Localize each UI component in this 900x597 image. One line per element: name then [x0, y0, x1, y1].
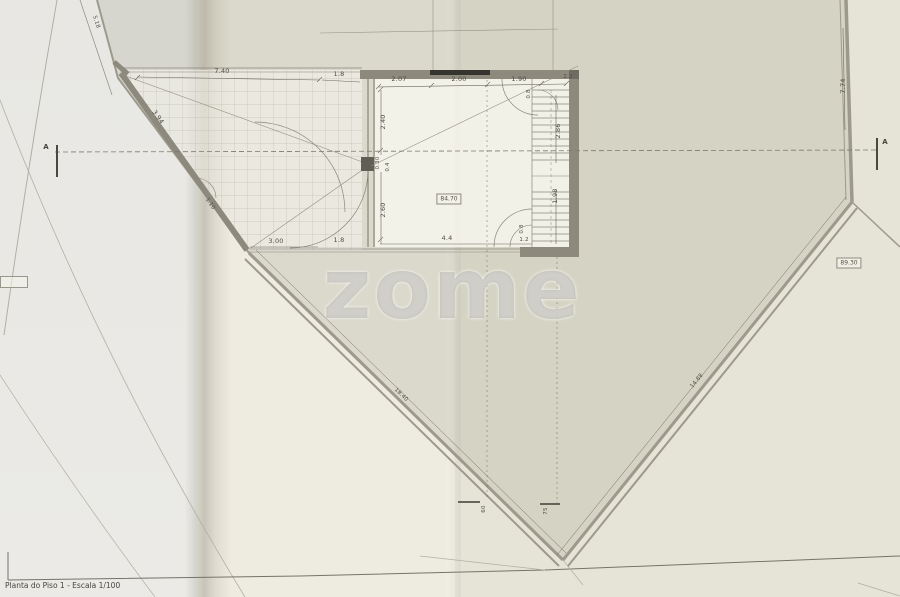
dim-terrace-bottom: 3.00	[268, 237, 283, 245]
dim-room-bottom: 4.4	[442, 234, 453, 242]
dim-divider-upper: 2.40	[379, 114, 387, 129]
dim-opening-bottom: 1.8	[334, 236, 345, 244]
section-marker-a-right: A	[882, 138, 887, 146]
dim-stairs-lower: 1.98	[551, 188, 559, 203]
watermark-logo: zome	[322, 240, 581, 338]
dim-door-bottom: 0.8	[519, 224, 525, 233]
dim-room-bottom-small: 1.2	[519, 237, 528, 243]
dim-divider-lower: 2.60	[379, 202, 387, 217]
main-room	[360, 66, 579, 257]
room-area-label: 84.70	[436, 194, 461, 205]
level-label-right: 89.30	[836, 258, 861, 269]
dim-level-tick-2: 75	[543, 507, 549, 514]
dim-terrace-width: 7.40	[214, 67, 229, 75]
dim-level-tick-1: 60	[481, 505, 487, 512]
level-label-left-partial	[0, 276, 28, 288]
dim-room-top-1: 2.07	[391, 75, 406, 83]
plan-title: Planta do Piso 1 - Escala 1/100	[5, 581, 120, 590]
section-marker-a-left: A	[43, 143, 48, 151]
scanned-floor-plan: zome A A 84.70 89.30 7.40 1.8 2.07 2.00 …	[0, 0, 900, 597]
dim-room-top-4: 2.2	[563, 74, 572, 80]
dim-column-d: 0.4	[385, 162, 391, 171]
dim-opening-top: 1.8	[334, 70, 345, 78]
dim-door-top: 0.8	[526, 89, 532, 98]
dim-right-boundary: 7.74	[839, 78, 847, 93]
dim-column-w: 0.30	[375, 156, 381, 169]
dim-room-top-3: 1.90	[511, 75, 526, 83]
dim-room-top-2: 2.00	[451, 75, 466, 83]
dim-stairs-upper: 2.86	[554, 123, 562, 138]
